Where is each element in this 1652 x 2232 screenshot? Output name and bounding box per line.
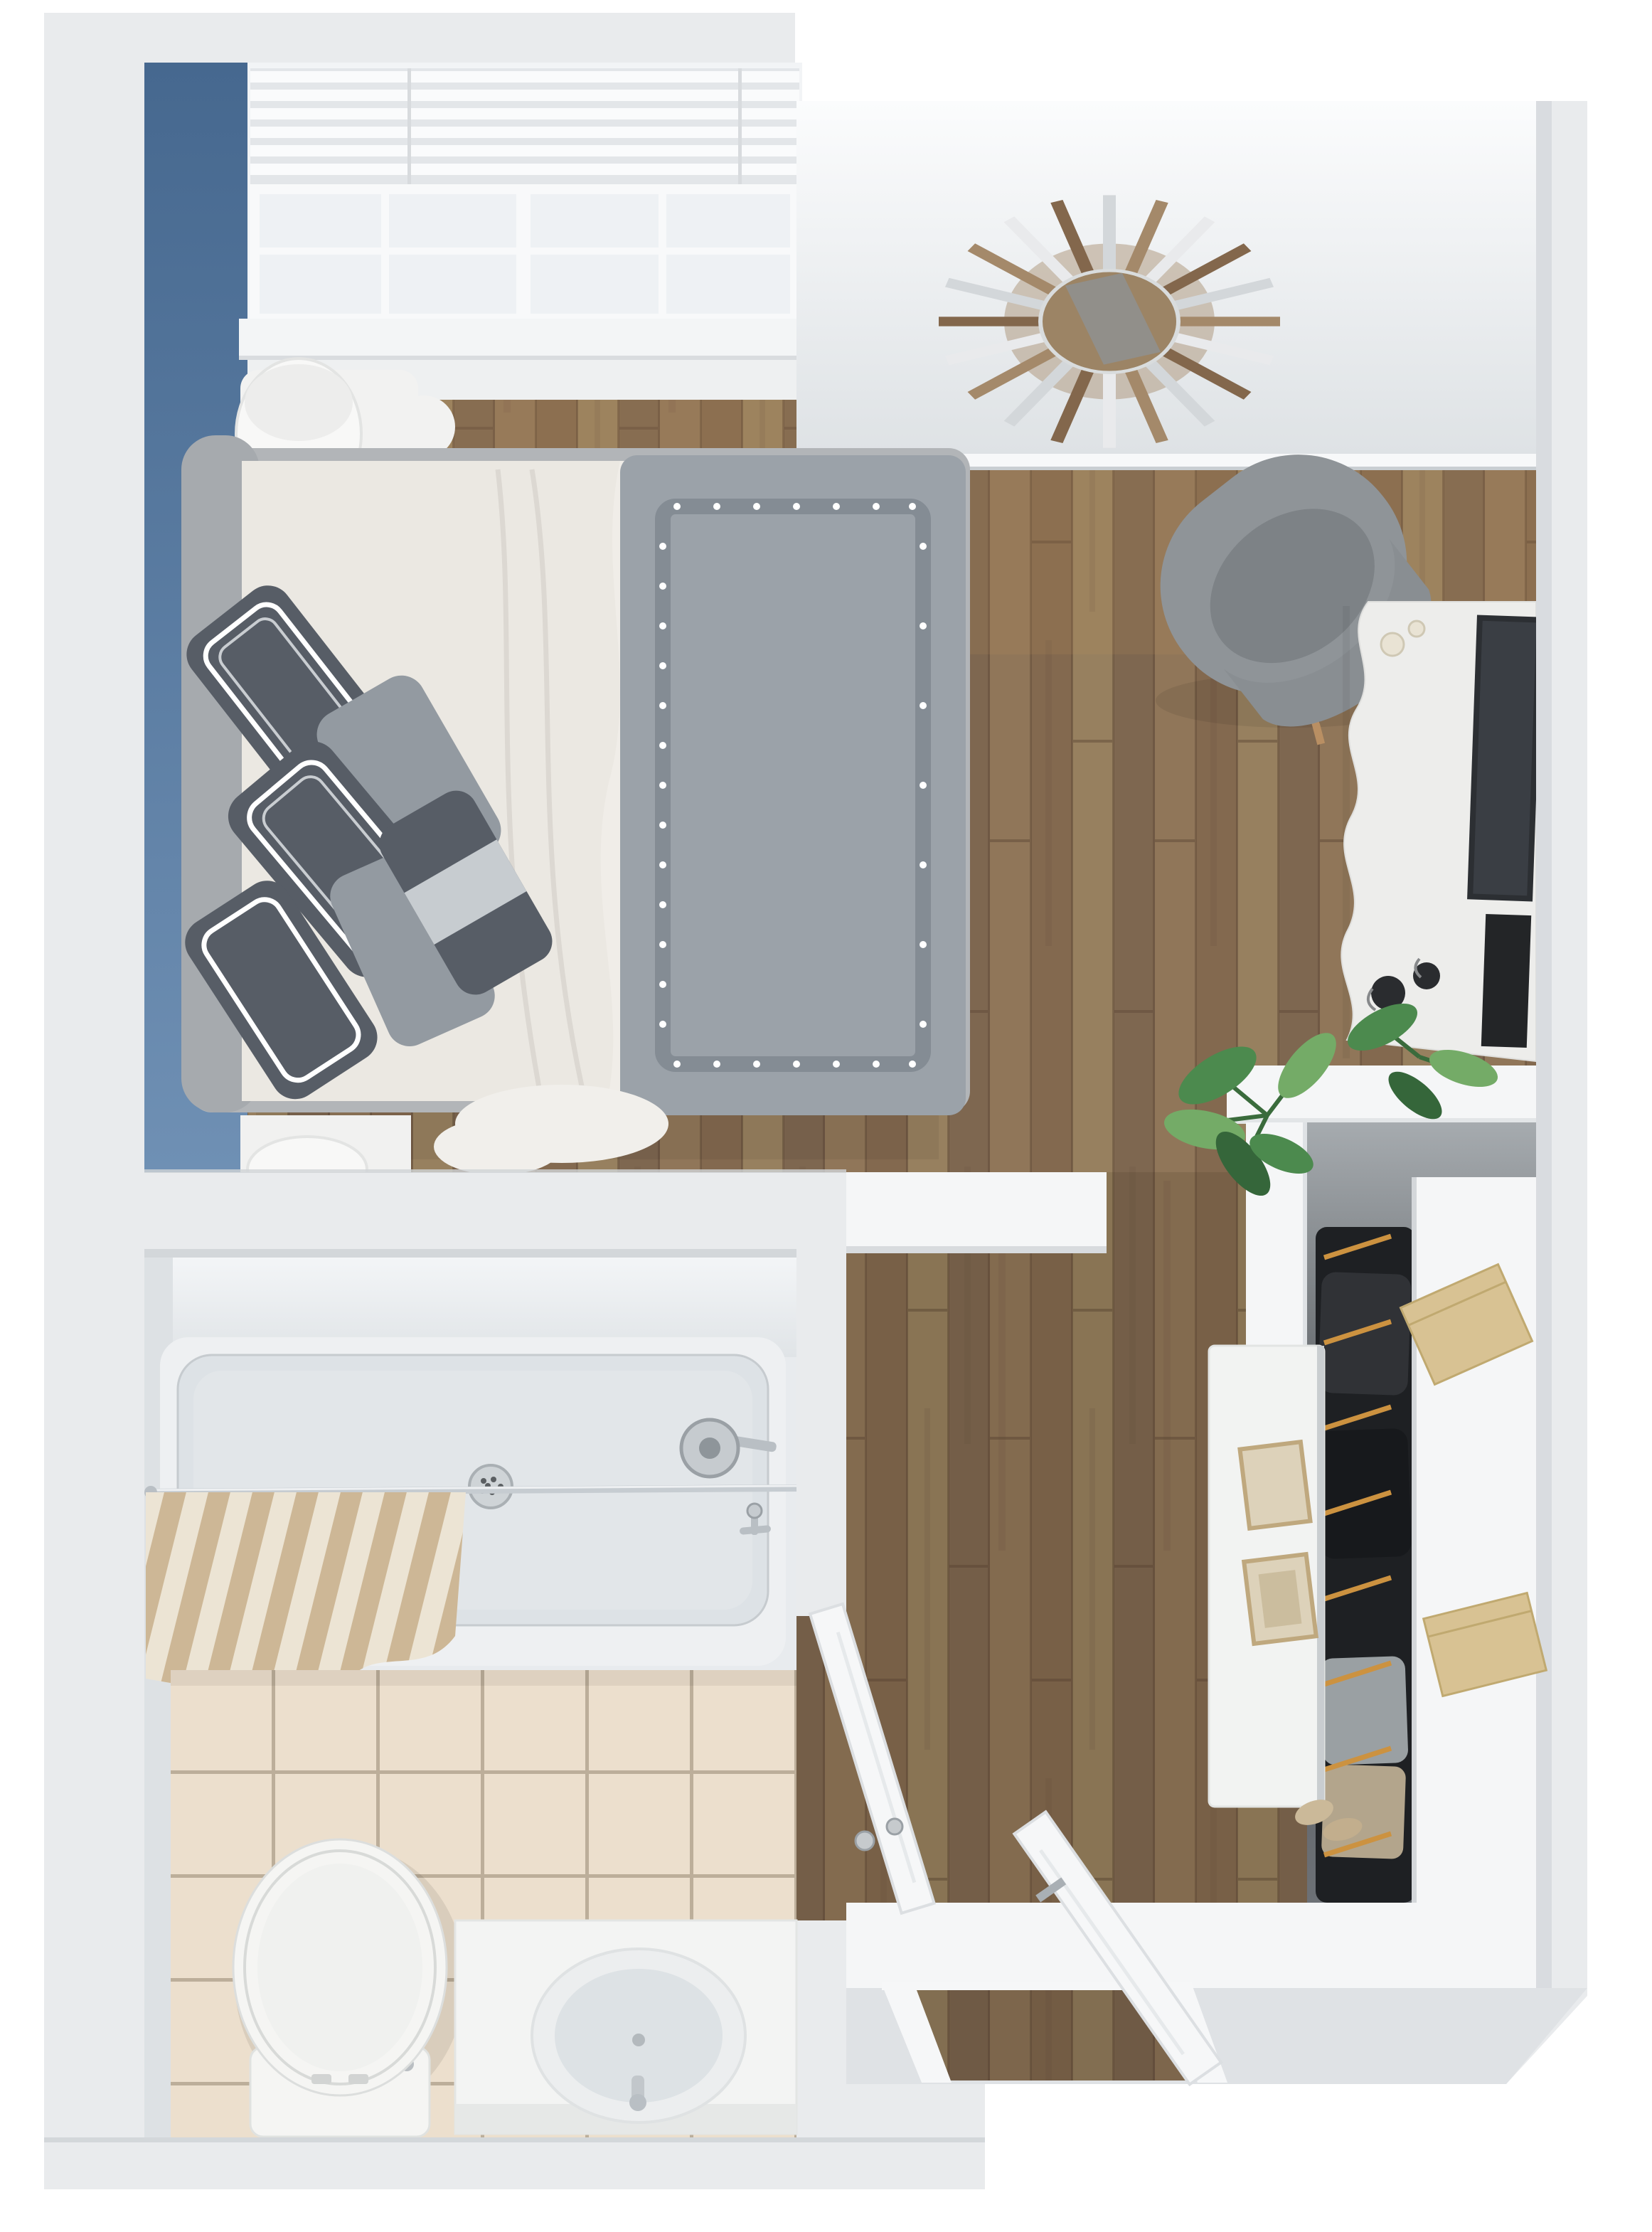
- tv-screen: [1473, 621, 1536, 896]
- partition-shadow: [843, 1246, 1107, 1253]
- door-knob: [856, 1832, 874, 1850]
- gray-duvet: [620, 455, 966, 1115]
- bedroom-south-wall: [44, 1172, 846, 1258]
- picture-frame: [1240, 1442, 1310, 1529]
- east-wall-face: [1536, 101, 1552, 1996]
- south-wall-edge-line: [44, 2137, 985, 2142]
- picture-frame: [1244, 1554, 1316, 1644]
- wall-edge-line: [144, 1169, 846, 1173]
- bedroom: [176, 358, 970, 1202]
- closet-dresser: [1209, 1346, 1324, 1807]
- soundbar: [1481, 914, 1531, 1048]
- toilet-lid: [257, 1864, 422, 2071]
- candle: [1409, 621, 1424, 637]
- flat-tv: [1467, 615, 1542, 902]
- window-with-blinds: [239, 63, 811, 400]
- sill-shadow-line: [239, 356, 811, 360]
- wall-face-line: [144, 1249, 846, 1258]
- partition-wall: [843, 1172, 1107, 1253]
- bed: [176, 435, 970, 1175]
- hanging-clothes: [1316, 1227, 1415, 1903]
- sink-drain: [632, 2034, 645, 2046]
- tub-shadow-on-tile: [171, 1670, 796, 1686]
- door-knob: [887, 1819, 902, 1834]
- lid-hinge: [348, 2074, 368, 2084]
- south-wall-top: [846, 1903, 1536, 1988]
- lid-hinge: [311, 2074, 331, 2084]
- faucet-base: [629, 2094, 646, 2111]
- vanity-sink: [455, 1920, 796, 2134]
- drum-lamp-top: [245, 364, 353, 441]
- media-console: [1341, 602, 1542, 1061]
- window-sill: [239, 319, 811, 360]
- floor-plan-render: [0, 0, 1652, 2232]
- window-rail: [255, 248, 795, 255]
- bathroom: [109, 1258, 796, 2137]
- window-glass: [255, 189, 795, 319]
- candle: [1381, 633, 1404, 656]
- sheet-overhang: [434, 1118, 562, 1175]
